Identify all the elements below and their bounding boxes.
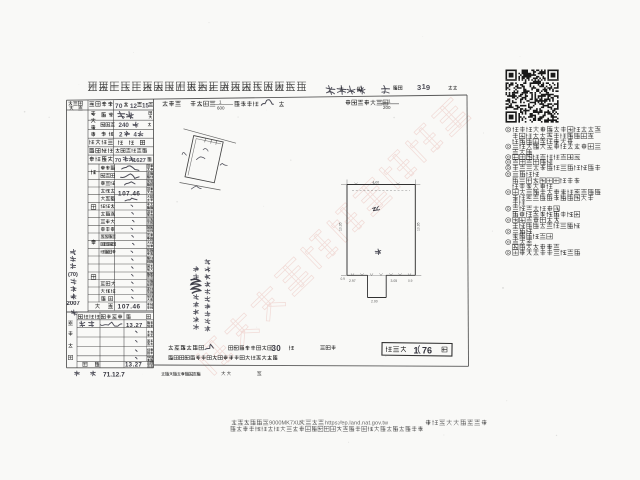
svg-text:240: 240 xyxy=(119,122,130,129)
svg-text:70: 70 xyxy=(115,103,123,110)
svg-text:3.05: 3.05 xyxy=(391,279,398,283)
svg-text:https:∕∕ep.land.nat.gov.tw: https:∕∕ep.land.nat.gov.tw xyxy=(325,421,389,427)
svg-text:107.46: 107.46 xyxy=(118,304,141,311)
svg-text:2.00: 2.00 xyxy=(371,300,378,304)
svg-text:13.27: 13.27 xyxy=(125,362,142,368)
svg-text:0.9: 0.9 xyxy=(341,277,346,281)
svg-text:107.46: 107.46 xyxy=(118,190,140,197)
svg-text:1: 1 xyxy=(414,346,419,356)
svg-text:200: 200 xyxy=(383,105,391,110)
svg-text:76: 76 xyxy=(422,346,432,356)
svg-text:30: 30 xyxy=(272,344,282,353)
svg-text:1627: 1627 xyxy=(133,158,146,164)
svg-text:15: 15 xyxy=(142,103,149,110)
svg-text:9000MK7XU: 9000MK7XU xyxy=(269,421,301,427)
svg-text:319: 319 xyxy=(417,82,430,92)
svg-text:0.9: 0.9 xyxy=(408,279,413,283)
svg-text:2.97: 2.97 xyxy=(349,279,356,283)
svg-text:4.00: 4.00 xyxy=(373,180,380,184)
svg-text:600: 600 xyxy=(217,105,225,110)
svg-text:2007: 2007 xyxy=(67,301,81,307)
svg-text:2: 2 xyxy=(119,131,123,138)
svg-text:70: 70 xyxy=(115,158,121,164)
svg-text:71.12.7: 71.12.7 xyxy=(103,372,125,379)
svg-text:13.27: 13.27 xyxy=(126,323,143,329)
svg-text:•: • xyxy=(418,223,419,227)
svg-text:12: 12 xyxy=(130,103,137,110)
svg-text:(70): (70) xyxy=(68,272,78,278)
svg-text:10.35: 10.35 xyxy=(339,222,343,231)
